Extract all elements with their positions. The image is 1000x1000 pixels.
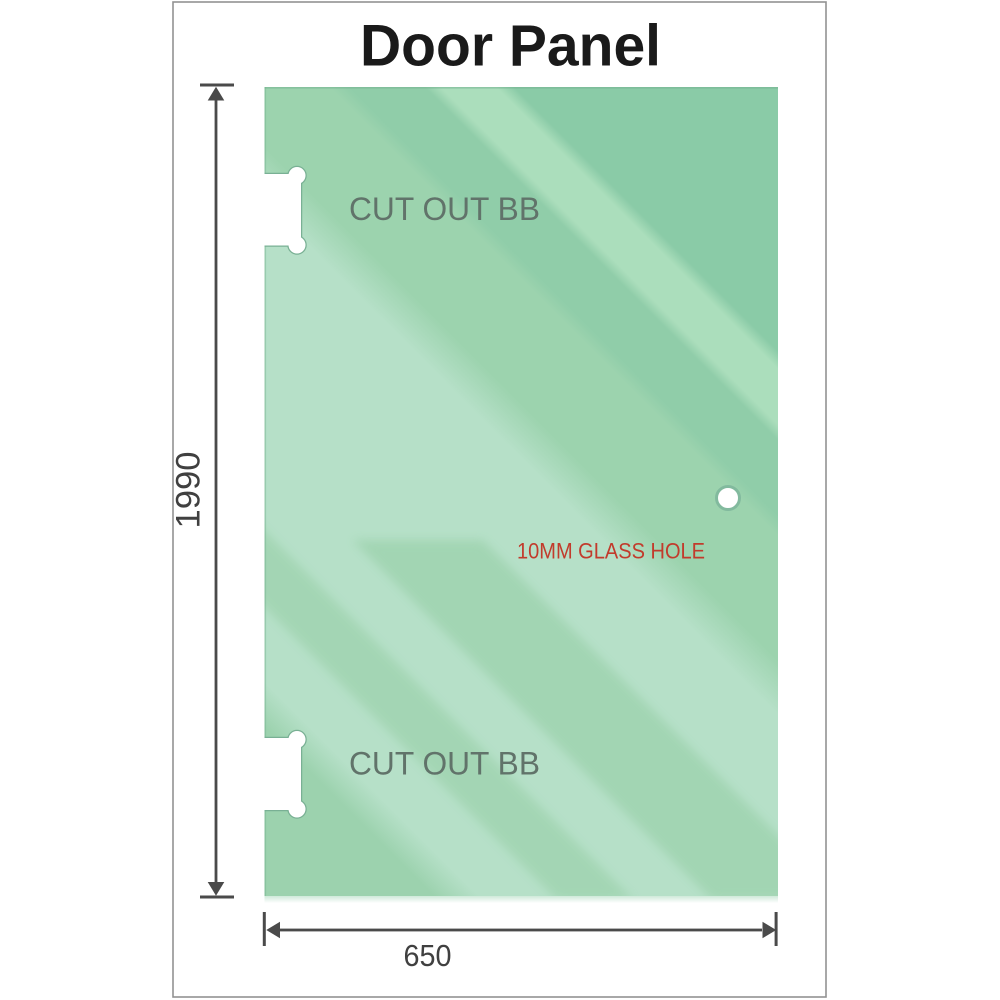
svg-text:1990: 1990 [170,452,208,529]
svg-text:CUT OUT BB: CUT OUT BB [349,746,540,782]
svg-text:650: 650 [404,939,452,973]
svg-text:CUT OUT BB: CUT OUT BB [349,191,540,227]
svg-text:Door Panel: Door Panel [360,14,661,79]
svg-text:10MM GLASS HOLE: 10MM GLASS HOLE [517,539,705,564]
